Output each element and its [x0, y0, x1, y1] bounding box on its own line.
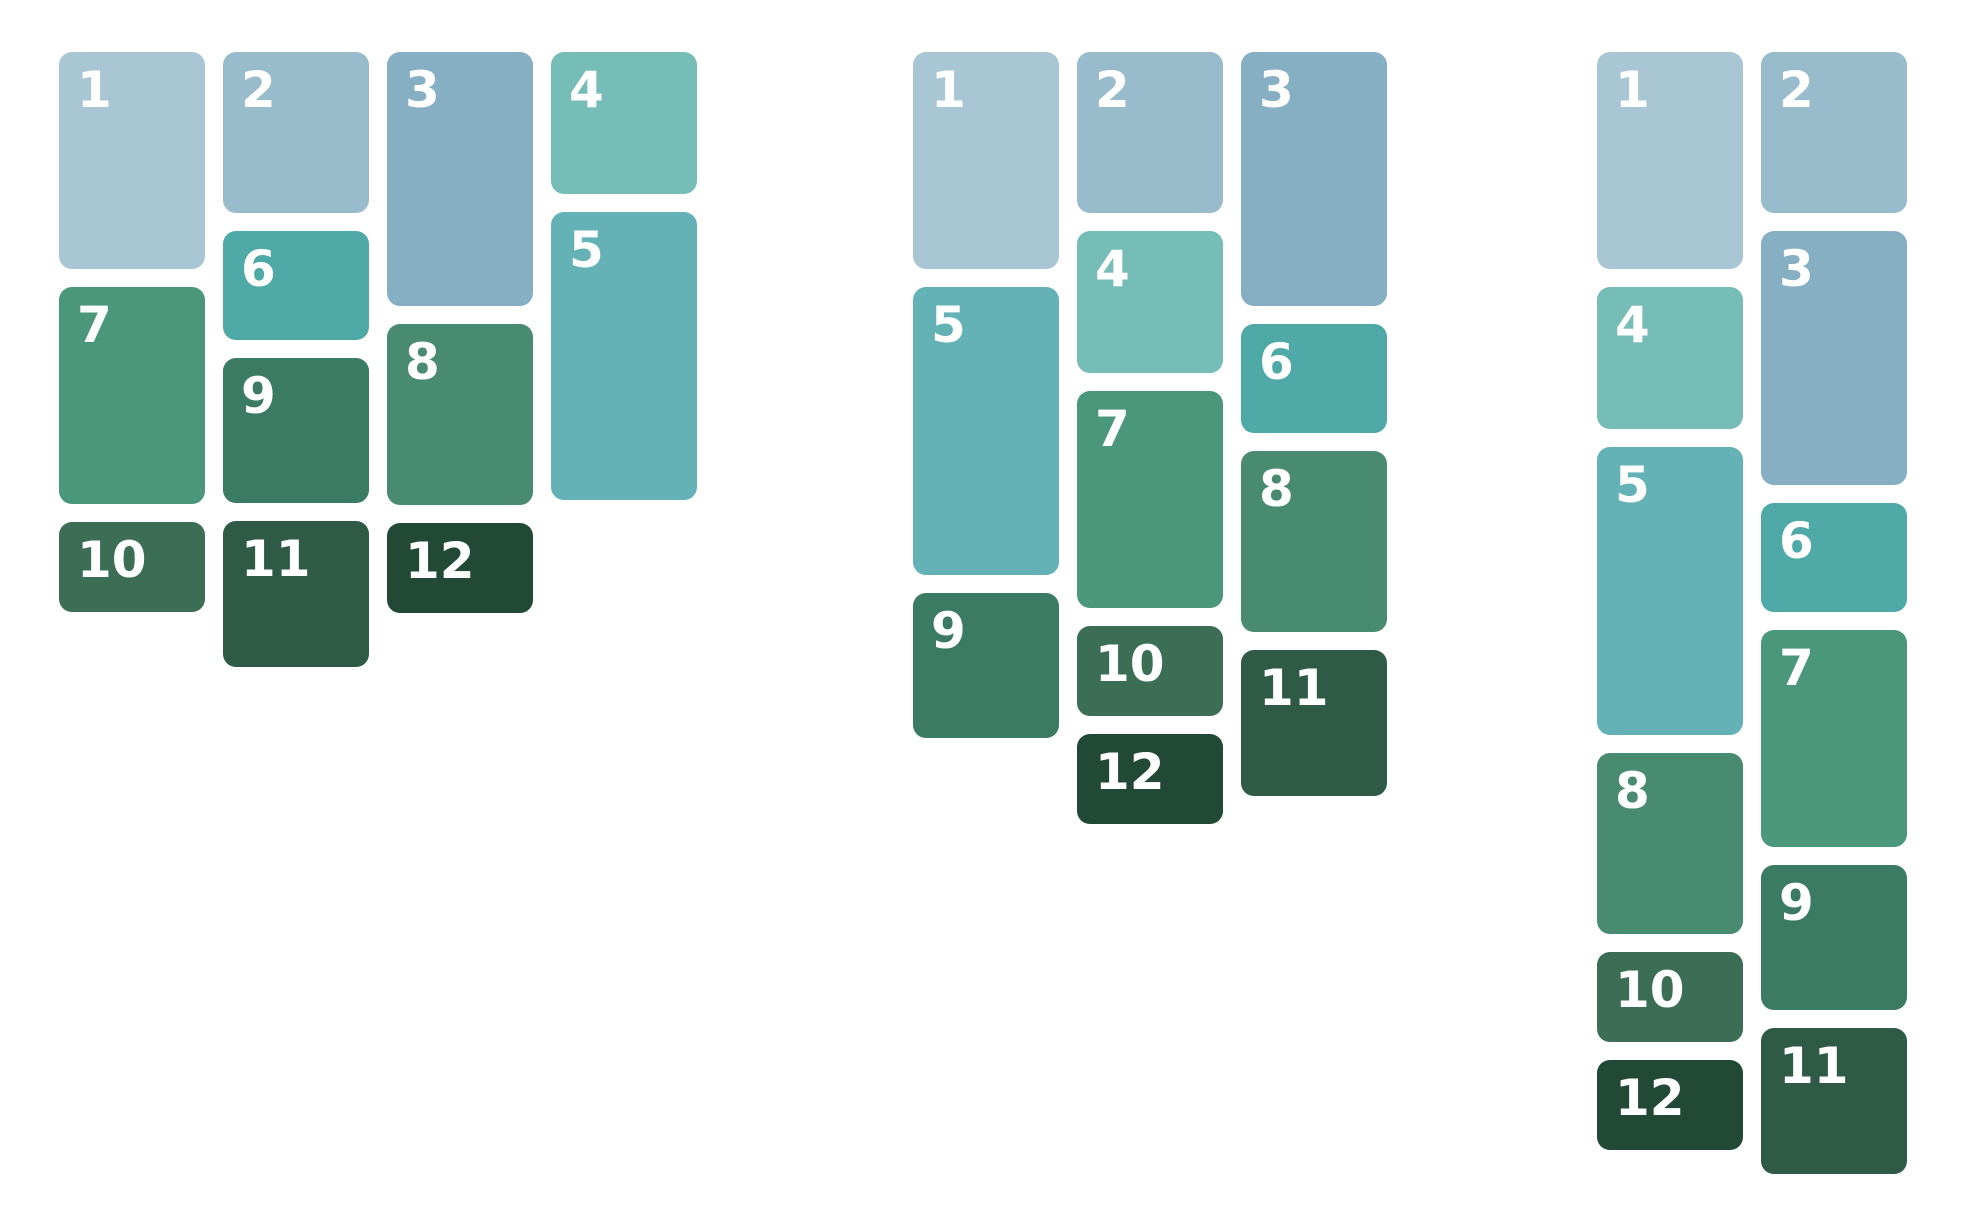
card-1: 1 [913, 52, 1059, 269]
card-label: 8 [1259, 463, 1294, 516]
card-label: 9 [1779, 877, 1814, 930]
card-label: 7 [1779, 642, 1814, 695]
card-label: 11 [1779, 1040, 1849, 1093]
card-5: 5 [1597, 447, 1743, 735]
card-3: 3 [1761, 231, 1907, 485]
card-label: 2 [1779, 64, 1814, 117]
card-9: 9 [1761, 865, 1907, 1010]
masonry-demo-canvas: 1710269113812451592471012368111458101223… [0, 0, 1962, 1232]
card-11: 11 [1241, 650, 1387, 796]
masonry-group-4col: 171026911381245 [59, 52, 697, 667]
card-label: 3 [1259, 64, 1294, 117]
card-label: 4 [1615, 299, 1650, 352]
card-label: 10 [1615, 964, 1685, 1017]
masonry-group-4col-column-1: 1710 [59, 52, 205, 612]
card-label: 9 [931, 605, 966, 658]
masonry-group-4col-column-2: 26911 [223, 52, 369, 667]
card-label: 6 [1259, 336, 1294, 389]
masonry-group-2col: 145810122367911 [1597, 52, 1907, 1174]
card-label: 11 [1259, 662, 1329, 715]
card-9: 9 [913, 593, 1059, 738]
card-8: 8 [1241, 451, 1387, 632]
masonry-group-2col-column-2: 2367911 [1761, 52, 1907, 1174]
card-8: 8 [387, 324, 533, 505]
card-label: 12 [1095, 746, 1165, 799]
card-label: 1 [1615, 64, 1650, 117]
card-label: 6 [1779, 515, 1814, 568]
card-label: 8 [1615, 765, 1650, 818]
card-label: 8 [405, 336, 440, 389]
card-12: 12 [387, 523, 533, 613]
card-5: 5 [551, 212, 697, 500]
card-label: 12 [1615, 1072, 1685, 1125]
masonry-group-4col-column-3: 3812 [387, 52, 533, 613]
card-label: 5 [1615, 459, 1650, 512]
card-label: 3 [1779, 243, 1814, 296]
card-label: 11 [241, 533, 311, 586]
card-12: 12 [1077, 734, 1223, 824]
card-label: 2 [241, 64, 276, 117]
card-2: 2 [1077, 52, 1223, 213]
card-5: 5 [913, 287, 1059, 575]
card-7: 7 [59, 287, 205, 504]
card-3: 3 [387, 52, 533, 306]
card-6: 6 [1761, 503, 1907, 612]
card-1: 1 [1597, 52, 1743, 269]
card-1: 1 [59, 52, 205, 269]
card-label: 1 [77, 64, 112, 117]
card-label: 7 [77, 299, 112, 352]
card-10: 10 [1077, 626, 1223, 716]
masonry-group-3col-column-3: 36811 [1241, 52, 1387, 796]
card-label: 2 [1095, 64, 1130, 117]
card-8: 8 [1597, 753, 1743, 934]
card-label: 1 [931, 64, 966, 117]
card-10: 10 [59, 522, 205, 612]
card-label: 10 [77, 534, 147, 587]
card-4: 4 [551, 52, 697, 194]
card-9: 9 [223, 358, 369, 503]
card-6: 6 [223, 231, 369, 340]
card-label: 12 [405, 535, 475, 588]
card-label: 4 [569, 64, 604, 117]
masonry-group-2col-column-1: 14581012 [1597, 52, 1743, 1150]
masonry-group-3col-column-2: 2471012 [1077, 52, 1223, 824]
card-label: 6 [241, 243, 276, 296]
card-4: 4 [1597, 287, 1743, 429]
card-label: 10 [1095, 638, 1165, 691]
card-2: 2 [223, 52, 369, 213]
card-4: 4 [1077, 231, 1223, 373]
masonry-group-4col-column-4: 45 [551, 52, 697, 500]
card-label: 5 [931, 299, 966, 352]
card-2: 2 [1761, 52, 1907, 213]
card-12: 12 [1597, 1060, 1743, 1150]
card-label: 5 [569, 224, 604, 277]
card-label: 3 [405, 64, 440, 117]
card-7: 7 [1077, 391, 1223, 608]
card-label: 4 [1095, 243, 1130, 296]
card-11: 11 [1761, 1028, 1907, 1174]
card-10: 10 [1597, 952, 1743, 1042]
masonry-group-3col: 159247101236811 [913, 52, 1387, 824]
card-label: 7 [1095, 403, 1130, 456]
card-label: 9 [241, 370, 276, 423]
card-3: 3 [1241, 52, 1387, 306]
card-11: 11 [223, 521, 369, 667]
card-7: 7 [1761, 630, 1907, 847]
masonry-group-3col-column-1: 159 [913, 52, 1059, 738]
card-6: 6 [1241, 324, 1387, 433]
